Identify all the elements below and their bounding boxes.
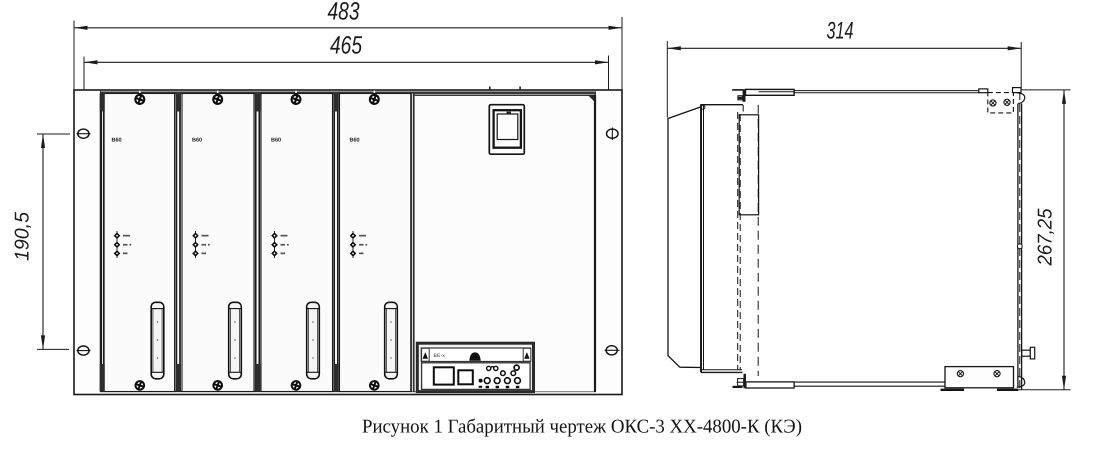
svg-text:В60: В60 (112, 138, 122, 144)
svg-text:В60: В60 (350, 138, 360, 144)
svg-text:314: 314 (827, 18, 854, 45)
svg-text:ВЕ-х: ВЕ-х (434, 353, 446, 359)
svg-text:465: 465 (330, 32, 362, 60)
svg-text:267,25: 267,25 (1035, 208, 1057, 267)
svg-text:В60: В60 (271, 138, 281, 144)
svg-text:В60: В60 (192, 138, 202, 144)
svg-text:190,5: 190,5 (12, 211, 34, 261)
svg-text:Рисунок 1 Габаритный чертеж ОК: Рисунок 1 Габаритный чертеж ОКС-3 ХХ-480… (362, 417, 802, 438)
svg-text:483: 483 (328, 0, 360, 26)
